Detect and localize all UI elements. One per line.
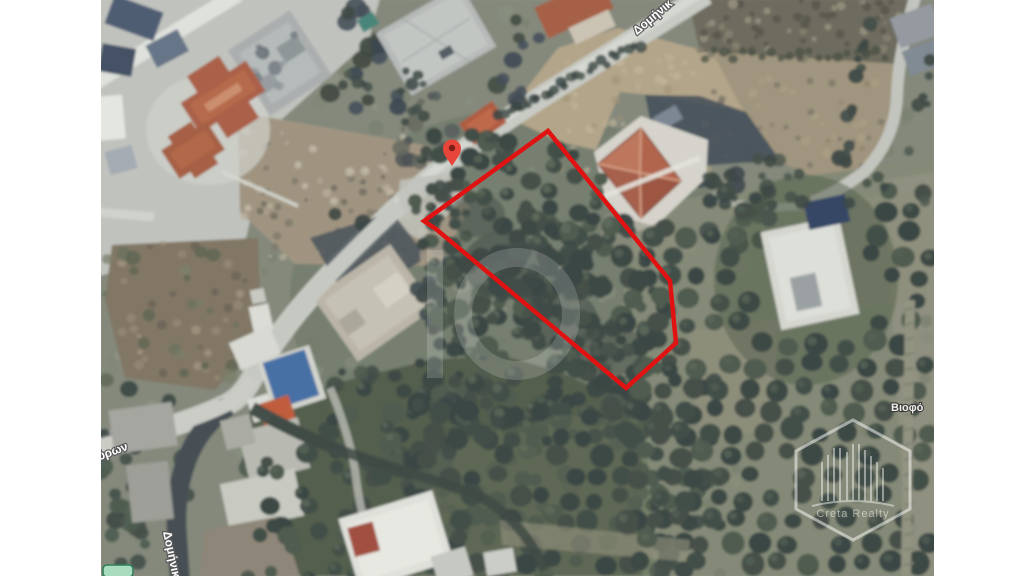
svg-text:Βιοφό: Βιοφό	[891, 402, 924, 414]
svg-text:Creta Realty: Creta Realty	[816, 508, 889, 520]
